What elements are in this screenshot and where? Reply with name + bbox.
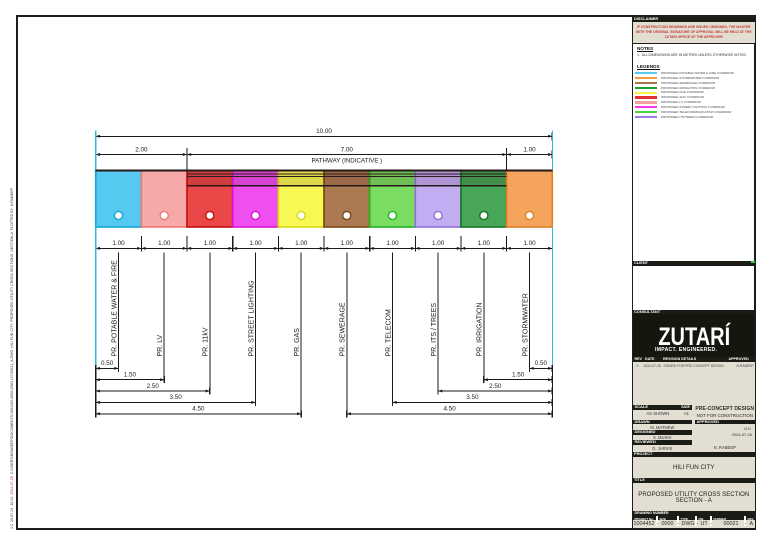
svg-text:1.00: 1.00 xyxy=(341,240,354,247)
svg-text:10.00: 10.00 xyxy=(316,128,332,135)
svg-text:PR. STREET LIGHTING: PR. STREET LIGHTING xyxy=(248,280,255,356)
svg-text:2.50: 2.50 xyxy=(489,383,502,390)
svg-text:1.00: 1.00 xyxy=(386,240,399,247)
svg-text:PR. TELECOM: PR. TELECOM xyxy=(385,309,392,356)
svg-text:0.50: 0.50 xyxy=(101,360,114,367)
svg-text:PR. LV: PR. LV xyxy=(157,335,164,357)
svg-text:0.50: 0.50 xyxy=(535,360,548,367)
svg-text:PR. STORMWATER: PR. STORMWATER xyxy=(522,293,529,356)
svg-text:1.00: 1.00 xyxy=(523,146,536,153)
svg-text:3.50: 3.50 xyxy=(466,394,479,401)
svg-text:1.00: 1.00 xyxy=(204,240,217,247)
svg-text:1.00: 1.00 xyxy=(523,240,536,247)
svg-text:4.50: 4.50 xyxy=(192,406,205,413)
svg-text:4.50: 4.50 xyxy=(443,406,456,413)
svg-text:PR. SEWERAGE: PR. SEWERAGE xyxy=(340,302,347,356)
svg-text:3.50: 3.50 xyxy=(169,394,182,401)
svg-text:1.50: 1.50 xyxy=(124,372,137,379)
svg-text:PR. 11kV: PR. 11kV xyxy=(203,327,210,356)
svg-text:1.00: 1.00 xyxy=(478,240,491,247)
svg-text:2.00: 2.00 xyxy=(135,146,148,153)
svg-text:PR. GAS: PR. GAS xyxy=(294,328,301,357)
svg-text:PATHWAY (INDICATIVE ): PATHWAY (INDICATIVE ) xyxy=(311,157,382,164)
svg-text:1.50: 1.50 xyxy=(512,372,525,379)
svg-text:1.00: 1.00 xyxy=(249,240,262,247)
svg-text:PR. ITS / TREES: PR. ITS / TREES xyxy=(431,303,438,357)
svg-text:1.00: 1.00 xyxy=(112,240,125,247)
svg-text:7.00: 7.00 xyxy=(341,146,354,153)
svg-text:1.00: 1.00 xyxy=(432,240,445,247)
svg-text:1.00: 1.00 xyxy=(158,240,171,247)
svg-text:PR. IRRIGATION: PR. IRRIGATION xyxy=(477,303,484,357)
svg-text:PR. POTABLE WATER & FIRE: PR. POTABLE WATER & FIRE xyxy=(111,260,118,357)
svg-text:2.50: 2.50 xyxy=(147,383,160,390)
svg-text:1.00: 1.00 xyxy=(295,240,308,247)
